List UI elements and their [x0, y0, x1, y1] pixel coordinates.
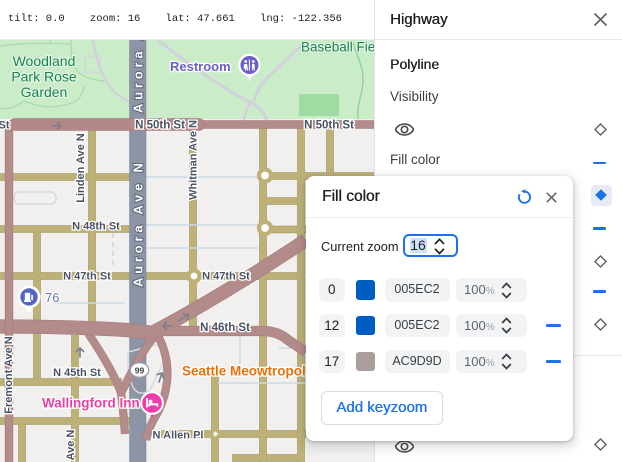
svg-text:St: St [0, 120, 10, 132]
svg-text:Aurora Ave N: Aurora Ave N [131, 159, 146, 287]
svg-text:Linden Ave N: Linden Ave N [75, 133, 87, 203]
svg-text:N 46th St: N 46th St [200, 322, 250, 334]
svg-text:N 45th St: N 45th St [53, 367, 101, 379]
svg-text:N 47th St: N 47th St [63, 271, 111, 283]
svg-text:Restroom: Restroom [170, 59, 231, 74]
svg-text:Baseball Fie: Baseball Fie [301, 40, 374, 55]
svg-text:Woodland: Woodland [13, 53, 76, 69]
svg-text:76: 76 [45, 290, 59, 305]
svg-text:Wallingford Inn: Wallingford Inn [42, 396, 140, 411]
svg-text:Whitman Ave N: Whitman Ave N [188, 120, 200, 200]
svg-text:N 47th St: N 47th St [202, 271, 250, 283]
svg-text:N 50th St: N 50th St [135, 120, 185, 132]
svg-text:Ave N: Ave N [65, 430, 77, 461]
svg-text:Aurora Ave N: Aurora Ave N [131, 40, 146, 113]
svg-text:Park Rose: Park Rose [11, 69, 77, 85]
svg-text:Seattle Meowtropolis: Seattle Meowtropolis [182, 364, 317, 379]
svg-text:Garden: Garden [21, 84, 68, 100]
svg-text:N 50th St: N 50th St [304, 120, 354, 132]
svg-text:99: 99 [135, 366, 145, 376]
svg-text:Fremont Ave N: Fremont Ave N [3, 336, 15, 413]
svg-text:N Allen Pl: N Allen Pl [153, 430, 204, 442]
svg-text:N 48th St: N 48th St [72, 221, 120, 233]
